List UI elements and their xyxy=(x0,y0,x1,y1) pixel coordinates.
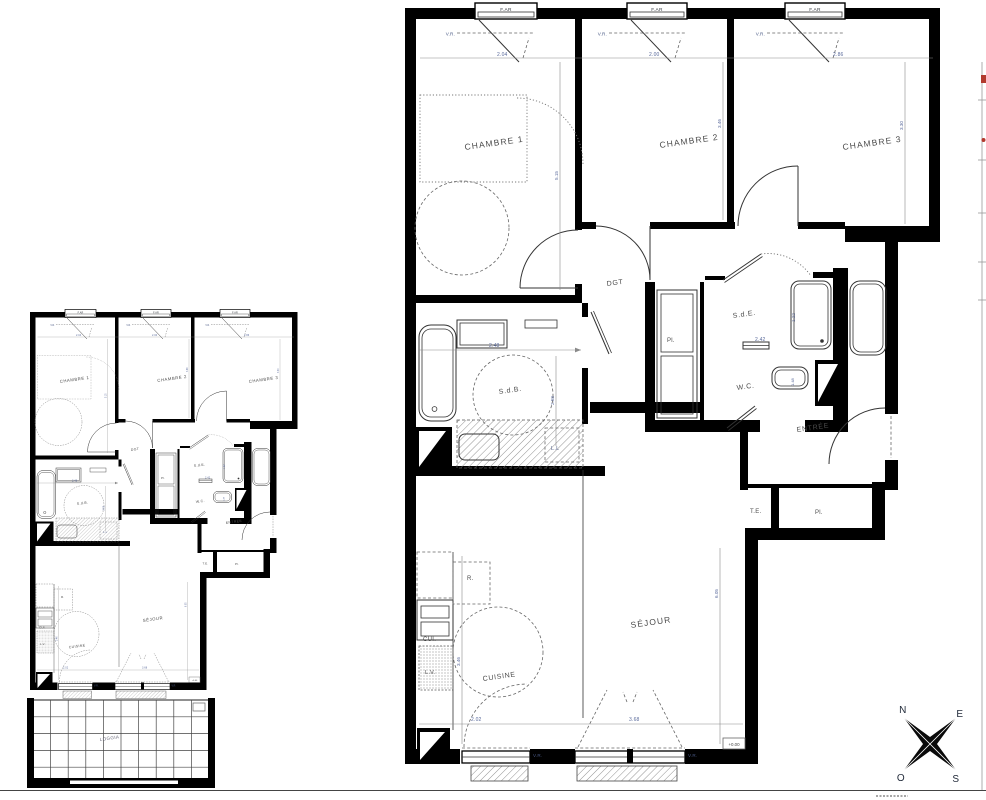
loggia: LOGGIA xyxy=(27,698,215,788)
compass-rose: N E O S xyxy=(897,705,964,785)
drawing-sheet: F.AR V.R. 2.04 F.AR V.R. 2.00 xyxy=(0,0,986,800)
edge-dot-red xyxy=(982,138,986,142)
compass-west: O xyxy=(897,773,905,784)
large-floor-plan xyxy=(405,3,940,781)
loggia-railing xyxy=(70,781,178,785)
compass-south: S xyxy=(952,774,959,785)
edge-mark-red xyxy=(981,75,986,83)
floorplan-canvas: F.AR V.R. 2.04 F.AR V.R. 2.00 xyxy=(0,0,986,800)
loggia-level-box xyxy=(193,703,205,711)
small-floor-plan xyxy=(30,310,298,699)
compass-east: E xyxy=(956,709,963,720)
compass-north: N xyxy=(899,705,907,716)
